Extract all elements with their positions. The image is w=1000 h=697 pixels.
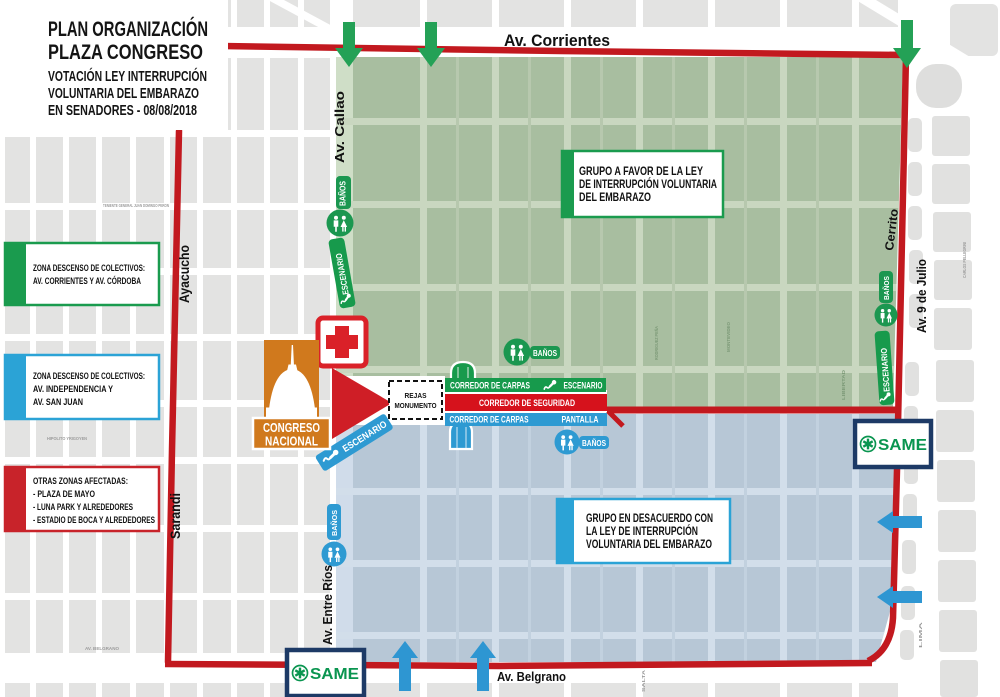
svg-text:MONUMENTO: MONUMENTO [395, 401, 437, 410]
svg-text:LIBERTAD: LIBERTAD [841, 369, 846, 400]
svg-text:NACIONAL: NACIONAL [265, 434, 318, 449]
svg-text:REJAS: REJAS [405, 391, 427, 400]
svg-text:CORREDOR DE CARPAS: CORREDOR DE CARPAS [450, 415, 529, 425]
svg-text:Av. Entre Ríos: Av. Entre Ríos [321, 565, 335, 645]
svg-text:ESCENARIO: ESCENARIO [564, 381, 603, 391]
svg-text:Ayacucho: Ayacucho [177, 245, 192, 303]
svg-text:ZONA DESCENSO DE COLECTIVOS:: ZONA DESCENSO DE COLECTIVOS: [33, 371, 145, 381]
svg-text:AV. SAN JUAN: AV. SAN JUAN [33, 397, 83, 407]
svg-text:PANTALLA: PANTALLA [562, 415, 599, 425]
svg-text:- ESTADIO DE BOCA Y ALREDEDORE: - ESTADIO DE BOCA Y ALREDEDORES [33, 515, 155, 525]
svg-text:VOLUNTARIA DEL EMBARAZO: VOLUNTARIA DEL EMBARAZO [586, 539, 712, 551]
svg-text:- PLAZA DE MAYO: - PLAZA DE MAYO [33, 489, 95, 499]
svg-text:OTRAS ZONAS AFECTADAS:: OTRAS ZONAS AFECTADAS: [33, 476, 128, 486]
svg-text:BAÑOS: BAÑOS [533, 349, 558, 358]
svg-text:HIPOLITO YRIGOYEN: HIPOLITO YRIGOYEN [47, 436, 87, 441]
svg-text:Av. Belgrano: Av. Belgrano [497, 670, 566, 684]
svg-text:CARLOS PELLEGRINI: CARLOS PELLEGRINI [962, 242, 967, 278]
svg-text:BAÑOS: BAÑOS [882, 276, 891, 300]
svg-text:DE INTERRUPCIÓN VOLUNTARIA: DE INTERRUPCIÓN VOLUNTARIA [579, 178, 717, 191]
svg-text:VOLUNTARIA DEL EMBARAZO: VOLUNTARIA DEL EMBARAZO [48, 86, 199, 102]
svg-text:AV. BELGRANO: AV. BELGRANO [85, 646, 119, 651]
svg-text:VOTACIÓN LEY INTERRUPCIÓN: VOTACIÓN LEY INTERRUPCIÓN [48, 67, 207, 85]
svg-text:PLAZA CONGRESO: PLAZA CONGRESO [48, 41, 203, 64]
svg-text:TENIENTE GENERAL JUAN DOMINGO: TENIENTE GENERAL JUAN DOMINGO PERON [103, 203, 169, 208]
svg-text:CORREDOR DE SEGURIDAD: CORREDOR DE SEGURIDAD [479, 398, 575, 409]
svg-text:MONTEVIDEO: MONTEVIDEO [726, 322, 731, 352]
svg-text:AV. CORRIENTES Y AV. CÓRDOBA: AV. CORRIENTES Y AV. CÓRDOBA [33, 275, 141, 286]
svg-text:SALTA: SALTA [641, 669, 646, 692]
svg-text:BAÑOS: BAÑOS [582, 439, 607, 448]
svg-text:Av. 9 de Julio: Av. 9 de Julio [914, 259, 929, 333]
svg-text:Sarandi: Sarandi [168, 493, 183, 539]
svg-text:GRUPO A FAVOR DE LA LEY: GRUPO A FAVOR DE LA LEY [579, 166, 703, 178]
svg-text:- LUNA PARK Y ALREDEDORES: - LUNA PARK Y ALREDEDORES [33, 502, 133, 512]
svg-text:DEL EMBARAZO: DEL EMBARAZO [579, 192, 651, 204]
svg-text:EN SENADORES - 08/08/2018: EN SENADORES - 08/08/2018 [48, 103, 197, 119]
svg-text:BAÑOS: BAÑOS [339, 180, 348, 206]
svg-text:RODRIGUEZ PEÑA: RODRIGUEZ PEÑA [653, 325, 659, 360]
svg-text:SAME: SAME [310, 666, 359, 683]
svg-text:LA LEY DE INTERRUPCIÓN: LA LEY DE INTERRUPCIÓN [586, 525, 698, 538]
svg-text:LIMA: LIMA [918, 620, 923, 648]
svg-text:Av. Corrientes: Av. Corrientes [504, 31, 610, 50]
svg-text:BAÑOS: BAÑOS [330, 510, 339, 536]
svg-text:PLAN ORGANIZACIÓN: PLAN ORGANIZACIÓN [48, 17, 208, 41]
svg-text:AV. INDEPENDENCIA Y: AV. INDEPENDENCIA Y [33, 384, 113, 394]
svg-text:Av. Callao: Av. Callao [332, 91, 347, 163]
svg-text:CORREDOR DE CARPAS: CORREDOR DE CARPAS [450, 381, 530, 391]
svg-text:ZONA DESCENSO DE COLECTIVOS:: ZONA DESCENSO DE COLECTIVOS: [33, 263, 145, 273]
svg-text:GRUPO EN DESACUERDO CON: GRUPO EN DESACUERDO CON [586, 513, 713, 525]
svg-text:SAME: SAME [878, 437, 927, 454]
